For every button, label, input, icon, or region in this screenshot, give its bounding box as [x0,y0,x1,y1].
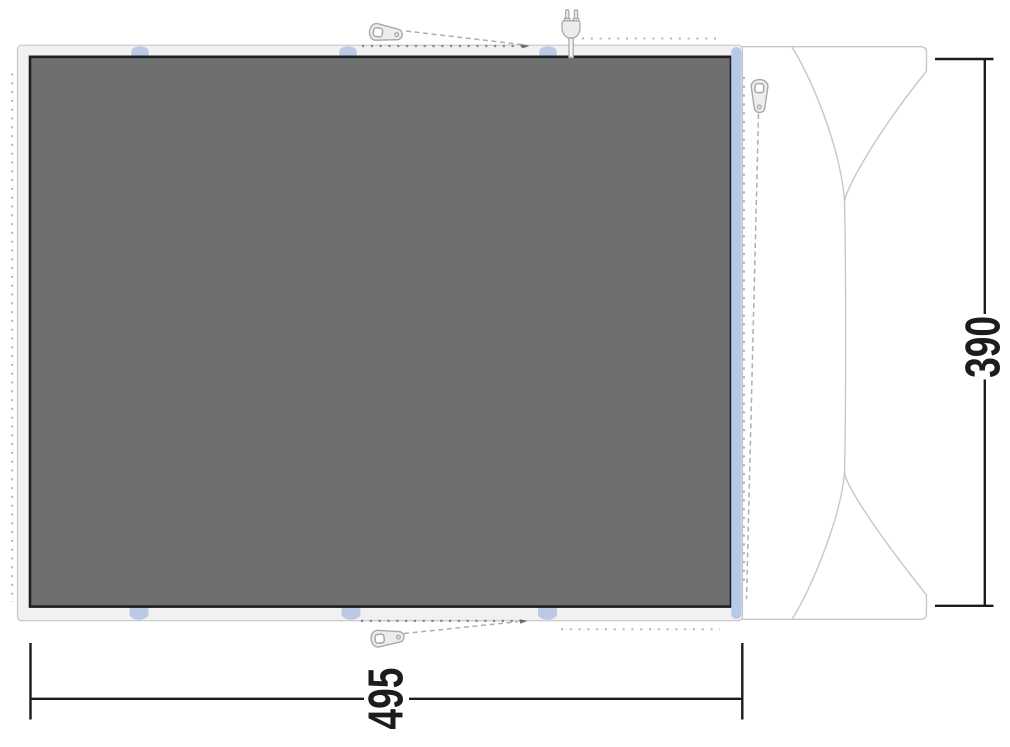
svg-text:390: 390 [956,316,1010,378]
svg-text:495: 495 [359,668,413,730]
